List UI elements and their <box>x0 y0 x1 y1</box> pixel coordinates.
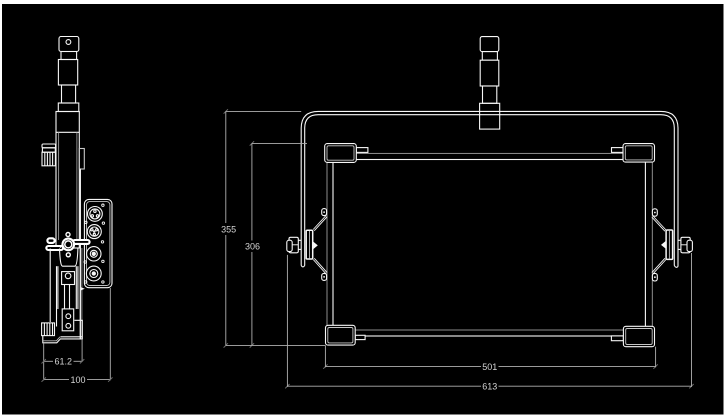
svg-text:501: 501 <box>482 362 497 372</box>
svg-text:61.2: 61.2 <box>55 357 73 367</box>
svg-text:355: 355 <box>221 224 236 234</box>
svg-text:306: 306 <box>245 241 260 251</box>
svg-text:100: 100 <box>70 375 85 385</box>
svg-text:613: 613 <box>482 382 497 392</box>
